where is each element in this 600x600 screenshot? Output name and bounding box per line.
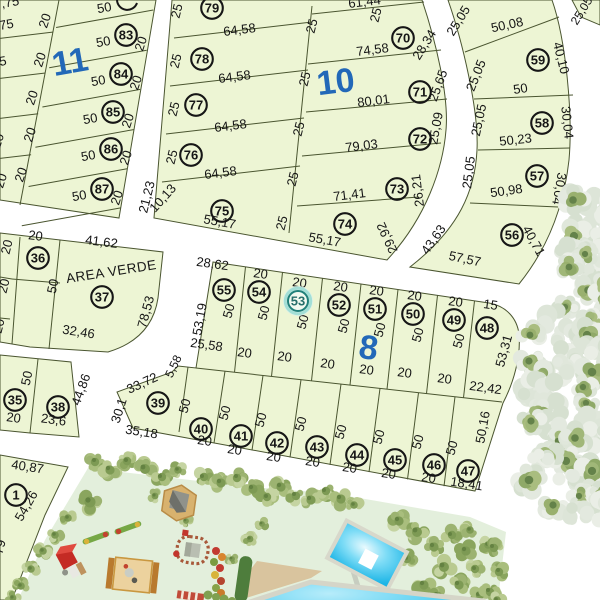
svg-text:50: 50 <box>71 187 88 204</box>
svg-text:43: 43 <box>310 439 324 454</box>
svg-text:20: 20 <box>236 344 252 361</box>
svg-text:50: 50 <box>82 110 99 127</box>
svg-text:1: 1 <box>12 487 19 502</box>
svg-text:54: 54 <box>252 284 267 299</box>
svg-text:36: 36 <box>31 250 45 265</box>
svg-text:75: 75 <box>0 16 15 33</box>
svg-text:44: 44 <box>350 447 365 462</box>
svg-text:39: 39 <box>151 395 165 410</box>
svg-text:42: 42 <box>270 435 284 450</box>
svg-text:20: 20 <box>265 448 282 465</box>
svg-text:72: 72 <box>413 131 427 146</box>
svg-text:38: 38 <box>51 399 65 414</box>
svg-text:41: 41 <box>234 428 248 443</box>
svg-text:50: 50 <box>406 306 420 321</box>
svg-text:74: 74 <box>338 216 353 231</box>
svg-text:85: 85 <box>106 104 120 119</box>
svg-text:20: 20 <box>436 370 452 387</box>
svg-text:50: 50 <box>96 0 113 16</box>
svg-text:50: 50 <box>44 277 62 294</box>
svg-text:53: 53 <box>291 293 305 308</box>
svg-text:71: 71 <box>413 84 427 99</box>
svg-text:50: 50 <box>90 72 107 89</box>
svg-text:87: 87 <box>95 181 109 196</box>
svg-text:20: 20 <box>276 348 292 365</box>
svg-text:20: 20 <box>447 293 463 310</box>
svg-text:84: 84 <box>114 66 129 81</box>
svg-text:10: 10 <box>315 61 357 103</box>
svg-text:56: 56 <box>505 227 519 242</box>
svg-text:50: 50 <box>512 80 528 97</box>
svg-text:48: 48 <box>480 320 494 335</box>
svg-text:77: 77 <box>189 97 203 112</box>
svg-text:58: 58 <box>535 115 549 130</box>
svg-text:46: 46 <box>427 457 441 472</box>
svg-text:20: 20 <box>406 287 422 304</box>
svg-text:57: 57 <box>530 168 544 183</box>
svg-text:45: 45 <box>388 452 402 467</box>
svg-text:59: 59 <box>531 52 545 67</box>
svg-text:75: 75 <box>215 203 229 218</box>
svg-text:20: 20 <box>304 453 321 470</box>
svg-text:11: 11 <box>49 40 91 84</box>
svg-text:20: 20 <box>396 364 412 381</box>
svg-text:20: 20 <box>319 355 335 372</box>
svg-text:37: 37 <box>95 289 109 304</box>
svg-text:20: 20 <box>332 278 348 295</box>
svg-text:79: 79 <box>205 0 219 15</box>
svg-text:35: 35 <box>8 392 22 407</box>
svg-text:20: 20 <box>27 227 43 244</box>
svg-text:52: 52 <box>332 297 346 312</box>
svg-text:76: 76 <box>184 147 198 162</box>
svg-text:50: 50 <box>18 369 36 386</box>
svg-text:40: 40 <box>194 421 208 436</box>
svg-text:78: 78 <box>195 51 209 66</box>
svg-text:20: 20 <box>252 265 268 282</box>
svg-text:20: 20 <box>368 282 384 299</box>
svg-text:51: 51 <box>368 301 382 316</box>
svg-text:86: 86 <box>104 141 118 156</box>
svg-text:83: 83 <box>119 27 133 42</box>
svg-text:55: 55 <box>217 282 231 297</box>
svg-text:73: 73 <box>390 181 404 196</box>
svg-text:70: 70 <box>396 30 410 45</box>
svg-text:50: 50 <box>95 33 112 50</box>
svg-text:50: 50 <box>80 147 97 164</box>
svg-text:49: 49 <box>447 312 461 327</box>
svg-text:15: 15 <box>482 296 498 313</box>
svg-text:47: 47 <box>461 463 475 478</box>
